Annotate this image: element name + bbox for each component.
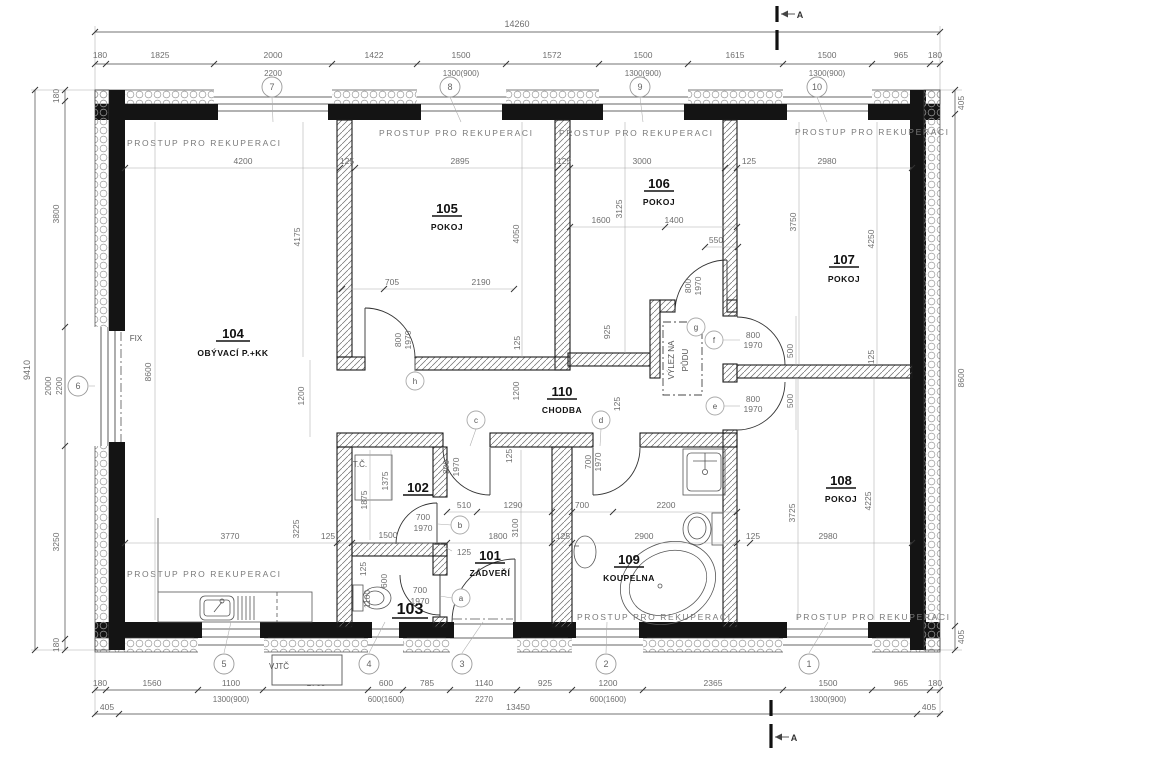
dim-bot-0: 180 [93,678,107,688]
dim-510: 510 [457,500,471,510]
grid-bubble-7: 7 [269,82,274,92]
room-label-101: 101 ZÁDVEŘÍ [470,548,511,578]
room-label-106: 106 POKOJ [643,176,675,207]
dim-left-sub: 2200 [55,377,64,395]
entrance-door-opening [446,621,521,653]
grid-bubble-6: 6 [75,381,80,391]
fix-window-label: FIX [130,334,143,343]
dim-bot-5: 785 [420,678,434,688]
room-101-number: 101 [479,548,501,563]
dim-right-0: 405 [956,96,966,110]
room-label-102: 102 [403,480,433,495]
dim-bot-10: 1500 [819,678,838,688]
dim-top-4: 1500 [452,50,471,60]
section-mark-top: A [777,6,804,50]
dim-1200-corridor-w: 1200 [296,386,306,405]
dim-top-total: 14260 [504,19,529,29]
dim-top-8: 1500 [818,50,837,60]
room-109-name: KOUPELNA [603,573,655,583]
window-bottom-5 [194,621,268,653]
dim-1100: 1100 [362,590,372,609]
grid-bubble-9: 9 [637,82,642,92]
dim-bot2-0: 405 [100,702,114,712]
dim-door-d-1970: 1970 [593,452,603,471]
dim-bot-12: 180 [928,678,942,688]
dim-125-107: 125 [866,350,876,364]
dim-top-6: 1500 [634,50,653,60]
dim-bot-9: 2365 [704,678,723,688]
door-tag-a: a [459,594,464,603]
window-bottom-4 [364,621,407,653]
section-label-top: A [797,10,804,20]
dim-bot2-1: 13450 [506,702,530,712]
dim-top-3: 1422 [365,50,384,60]
dim-3100: 3100 [510,518,520,537]
room-label-108: 108 POKOJ [825,473,857,504]
room-110-name: CHODBA [542,405,582,415]
door-tag-d: d [599,416,603,425]
grid-bubble-8: 8 [447,82,452,92]
door-tag-h: h [413,377,417,386]
dim-1600: 1600 [592,215,611,225]
dim-left-4: 180 [51,638,61,652]
room-label-110: 110 CHODBA [542,384,582,415]
dim-bot-sub-1: 600(1600) [368,695,405,704]
dim-door-f-800: 800 [746,330,760,340]
dim-1500: 1500 [379,530,398,540]
grid-bubble-3: 3 [459,659,464,669]
room-109-number: 109 [618,552,640,567]
dim-top-2: 2000 [264,50,283,60]
dim-2200: 2200 [657,500,676,510]
dimension-lines-right: 405 8600 405 [940,90,966,650]
dim-left-2: 2000 [43,376,53,395]
dim-top-sub-1: 1300(900) [443,69,480,78]
dim-125-a: 125 [340,156,354,166]
room-106-name: POKOJ [643,197,675,207]
dim-left-3: 3250 [51,532,61,551]
room-108-number: 108 [830,473,852,488]
dim-door-a-700: 700 [413,585,427,595]
dim-bot-4: 600 [379,678,393,688]
bathroom-shower-icon [683,449,725,495]
dim-left-0: 180 [51,89,61,103]
dim-door-h-1970: 1970 [403,330,413,349]
dim-3225: 3225 [291,519,301,538]
dim-600-103: 600 [379,574,389,588]
dim-3725: 3725 [787,503,797,522]
window-top-10 [779,89,876,121]
recuperation-label-104-top: PROSTUP PRO REKUPERACI [127,138,282,148]
dim-bot-sub-0: 1300(900) [213,695,250,704]
dim-3750: 3750 [788,212,798,231]
dim-1375: 1375 [380,471,390,490]
section-mark-bottom: A [771,700,798,748]
dim-door-c-1970: 1970 [451,457,461,476]
dim-door-e-800: 800 [746,394,760,404]
room-101-name: ZÁDVEŘÍ [470,567,511,578]
dim-bot-2: 1100 [222,678,241,688]
recuperation-label-106: PROSTUP PRO REKUPERACI [559,128,714,138]
dim-bot2-2: 405 [922,702,936,712]
dim-door-g-1970: 1970 [693,276,703,295]
dim-4050: 4050 [511,224,521,243]
dim-2895: 2895 [451,156,470,166]
interior-walls [337,120,912,627]
dim-125-v1: 125 [512,336,522,350]
attic-access-label-2: PŮDU [681,348,690,371]
dim-bot-sub-4: 1300(900) [810,695,847,704]
window-left-fix [94,323,127,450]
dim-door-g-800: 800 [683,279,693,293]
bathroom-washbasin-icon [574,536,596,568]
dim-125-109e: 125 [746,531,760,541]
room-105-name: POKOJ [431,222,463,232]
dim-3770: 3770 [221,531,240,541]
room-label-104: 104 OBÝVACÍ P.+KK [197,326,268,358]
dim-4250: 4250 [866,229,876,248]
floor-plan-page: 14260 180 1825 2000 1422 1500 1572 1500 … [0,0,1152,760]
floor-plan-drawing: 14260 180 1825 2000 1422 1500 1572 1500 … [0,0,1152,760]
recuperation-label-105: PROSTUP PRO REKUPERACI [379,128,534,138]
window-top-8 [413,89,510,121]
dim-top-5: 1572 [543,50,562,60]
dim-2900: 2900 [635,531,654,541]
recuperation-label-108: PROSTUP PRO REKUPERACI [796,612,951,622]
dim-1200-corridor-e: 1200 [511,381,521,400]
dim-1290: 1290 [504,500,523,510]
door-tag-g: g [694,323,698,332]
dim-door-h-800: 800 [393,333,403,347]
grid-bubble-2: 2 [603,659,608,669]
dim-125-b: 125 [557,156,571,166]
dim-door-a-1970: 1970 [411,596,430,606]
dim-4200: 4200 [234,156,253,166]
door-tag-c: c [474,416,478,425]
door-tag-b: b [458,521,463,530]
room-105-number: 105 [436,201,458,216]
room-label-105: 105 POKOJ [431,201,463,232]
dim-125-104: 125 [321,531,335,541]
dim-door-b-1970: 1970 [414,523,433,533]
dim-right-2: 405 [956,630,966,644]
grid-bubble-5: 5 [221,659,226,669]
room-107-number: 107 [833,252,855,267]
recuperation-label-109: PROSTUP PRO REKUPERACI [577,612,732,622]
door-tag-e: e [713,402,718,411]
dim-door-d-700: 700 [583,455,593,469]
room-104-name: OBÝVACÍ P.+KK [197,347,268,358]
dim-bot-7: 925 [538,678,552,688]
dim-door-b-700: 700 [416,512,430,522]
room-108-name: POKOJ [825,494,857,504]
room-104-number: 104 [222,326,244,341]
dim-3000: 3000 [633,156,652,166]
room-110-number: 110 [552,384,573,399]
dim-125-c: 125 [742,156,756,166]
grid-bubble-1: 1 [806,659,811,669]
window-bottom-1 [779,621,876,653]
dim-550: 550 [709,235,723,245]
dim-500-e: 500 [785,394,795,408]
dim-8600-left: 8600 [143,362,153,381]
dim-1400: 1400 [665,215,684,225]
dim-925: 925 [602,325,612,339]
grid-bubbles: 7 8 9 10 5 4 3 2 1 6 [68,77,828,674]
bathroom-toilet-icon [683,513,723,545]
window-bottom-2 [568,621,647,653]
dim-2190: 2190 [472,277,491,287]
dim-1800: 1800 [489,531,508,541]
dim-bot-8: 1200 [599,678,618,688]
heat-pump-label: T.Č. [353,460,367,469]
grid-bubble-4: 4 [366,659,371,669]
dim-4225: 4225 [863,491,873,510]
dim-top-0: 180 [93,50,107,60]
room-label-109: 109 KOUPELNA [603,552,655,583]
dim-500-f: 500 [785,344,795,358]
dim-left-total: 9410 [22,360,32,380]
dim-top-sub-2: 1300(900) [625,69,662,78]
section-label-bottom: A [791,733,798,743]
dim-right-1: 8600 [956,368,966,387]
dim-125-103: 125 [358,562,368,576]
annotation-texts: PROSTUP PRO REKUPERACI PROSTUP PRO REKUP… [127,127,951,671]
grid-bubble-10: 10 [812,82,822,92]
room-102-number: 102 [407,480,429,495]
dim-125-leader: 125 [457,547,471,557]
dim-3125: 3125 [614,199,624,218]
recuperation-label-107: PROSTUP PRO REKUPERACI [795,127,950,137]
dimension-lines-left: 9410 180 3800 2000 2200 3250 180 [22,89,95,652]
room-106-number: 106 [648,176,670,191]
dim-top-7: 1615 [726,50,745,60]
room-107-name: POKOJ [828,274,860,284]
dim-2980-top: 2980 [818,156,837,166]
dim-bot-6: 1140 [475,678,494,688]
dim-125-101: 125 [504,449,514,463]
dim-left-1: 3800 [51,204,61,223]
dim-top-sub-3: 1300(900) [809,69,846,78]
dim-top-9: 965 [894,50,908,60]
dim-top-1: 1825 [151,50,170,60]
recuperation-label-104-bottom: PROSTUP PRO REKUPERACI [127,569,282,579]
vjtc-label: VJTČ [269,662,289,671]
dim-bot-sub-3: 600(1600) [590,695,627,704]
dim-door-e-1970: 1970 [744,404,763,414]
dim-bot-1: 1560 [143,678,162,688]
dim-705: 705 [385,277,399,287]
dim-4175: 4175 [292,227,302,246]
dim-2980-108: 2980 [819,531,838,541]
dim-1875: 1875 [359,490,369,509]
dim-700-109: 700 [575,500,589,510]
dim-125-109w: 125 [556,531,570,541]
dim-door-c-800: 800 [441,460,451,474]
dim-bot-11: 965 [894,678,908,688]
dim-125-corridor: 125 [612,397,622,411]
room-label-107: 107 POKOJ [828,252,860,284]
dim-bot-sub-2: 2270 [475,695,493,704]
dim-door-f-1970: 1970 [744,340,763,350]
attic-access-label-1: VÝLEZ NA [667,340,676,379]
dim-top-10: 180 [928,50,942,60]
